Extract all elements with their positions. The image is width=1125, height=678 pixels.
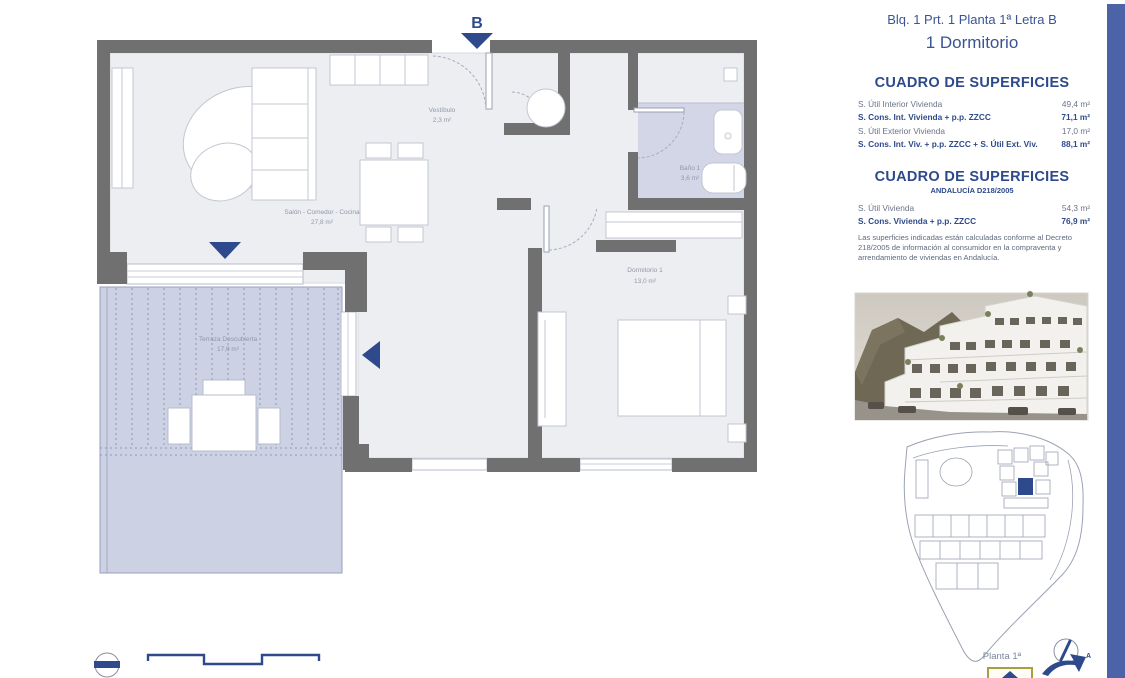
- row-label: S. Útil Exterior Vivienda: [858, 125, 945, 138]
- row-label: S. Útil Vivienda: [858, 202, 914, 215]
- room-label-bano: Baño 1: [680, 165, 701, 172]
- table-row: S. Cons. Int. Viv. + p.p. ZZCC + S. Útil…: [852, 138, 1092, 151]
- building-photo: [855, 291, 1088, 420]
- row-label: S. Útil Interior Vivienda: [858, 98, 942, 111]
- room-area-vestibulo: 2,3 m²: [433, 117, 452, 124]
- site-plan-caption: Planta 1ª: [983, 651, 1022, 662]
- row-label: S. Cons. Int. Vivienda + p.p. ZZCC: [858, 111, 991, 124]
- surface-table-title: CUADRO DE SUPERFICIES: [852, 169, 1092, 185]
- table-row: S. Útil Interior Vivienda 49,4 m²: [852, 98, 1092, 111]
- accent-side-bar: [1107, 4, 1125, 678]
- room-label-terraza: Terraza Descubierta: [199, 336, 258, 343]
- unit-location-marker: [1018, 478, 1033, 495]
- room-label-salon: Salón - Comedor - Cocina: [284, 209, 360, 216]
- surface-table-andalucia: CUADRO DE SUPERFICIES ANDALUCÍA D218/200…: [852, 169, 1092, 263]
- row-label: S. Cons. Vivienda + p.p. ZZCC: [858, 215, 976, 228]
- row-value: 88,1 m²: [1061, 138, 1090, 151]
- row-value: 17,0 m²: [1062, 125, 1090, 138]
- room-area-bano: 3,6 m²: [681, 175, 700, 182]
- room-area-dormitorio: 13,0 m²: [634, 278, 657, 285]
- room-label-dormitorio: Dormitorio 1: [627, 267, 663, 274]
- room-area-salon: 27,8 m²: [311, 219, 334, 226]
- row-value: 76,9 m²: [1061, 215, 1090, 228]
- floor-plan: B Vestíbulo 2,3 m² Salón - Comedor - Coc…: [97, 15, 757, 573]
- room-area-terraza: 17,0 m²: [217, 346, 240, 353]
- row-value: 54,3 m²: [1062, 202, 1090, 215]
- legal-note: Las superficies indicadas están calculad…: [852, 233, 1092, 262]
- table-row: S. Útil Vivienda 54,3 m²: [852, 202, 1092, 215]
- certification-logo: [988, 668, 1032, 678]
- row-value: 71,1 m²: [1061, 111, 1090, 124]
- brand-logo-letter: A: [1086, 653, 1091, 660]
- info-panel: Blq. 1 Prt. 1 Planta 1ª Letra B 1 Dormit…: [852, 0, 1092, 262]
- terrace-area: [100, 287, 342, 573]
- table-row: S. Cons. Int. Vivienda + p.p. ZZCC 71,1 …: [852, 111, 1092, 124]
- table-row: S. Útil Exterior Vivienda 17,0 m²: [852, 125, 1092, 138]
- plan-sheet-page: B Vestíbulo 2,3 m² Salón - Comedor - Coc…: [0, 0, 1125, 678]
- arrow-down-entrance-icon: [461, 33, 493, 49]
- section-marker-b: B: [471, 15, 483, 32]
- unit-location-heading: Blq. 1 Prt. 1 Planta 1ª Letra B: [852, 12, 1092, 27]
- site-plan: Planta 1ª A: [904, 432, 1091, 678]
- row-value: 49,4 m²: [1062, 98, 1090, 111]
- surface-table-title: CUADRO DE SUPERFICIES: [852, 75, 1092, 91]
- surface-table-subtitle: ANDALUCÍA D218/2005: [852, 186, 1092, 195]
- row-label: S. Cons. Int. Viv. + p.p. ZZCC + S. Útil…: [858, 138, 1038, 151]
- table-row: S. Cons. Vivienda + p.p. ZZCC 76,9 m²: [852, 215, 1092, 228]
- scale-bar: [94, 653, 319, 677]
- room-label-vestibulo: Vestíbulo: [429, 107, 456, 114]
- unit-type-heading: 1 Dormitorio: [852, 33, 1092, 53]
- surface-table-primary: CUADRO DE SUPERFICIES S. Útil Interior V…: [852, 75, 1092, 152]
